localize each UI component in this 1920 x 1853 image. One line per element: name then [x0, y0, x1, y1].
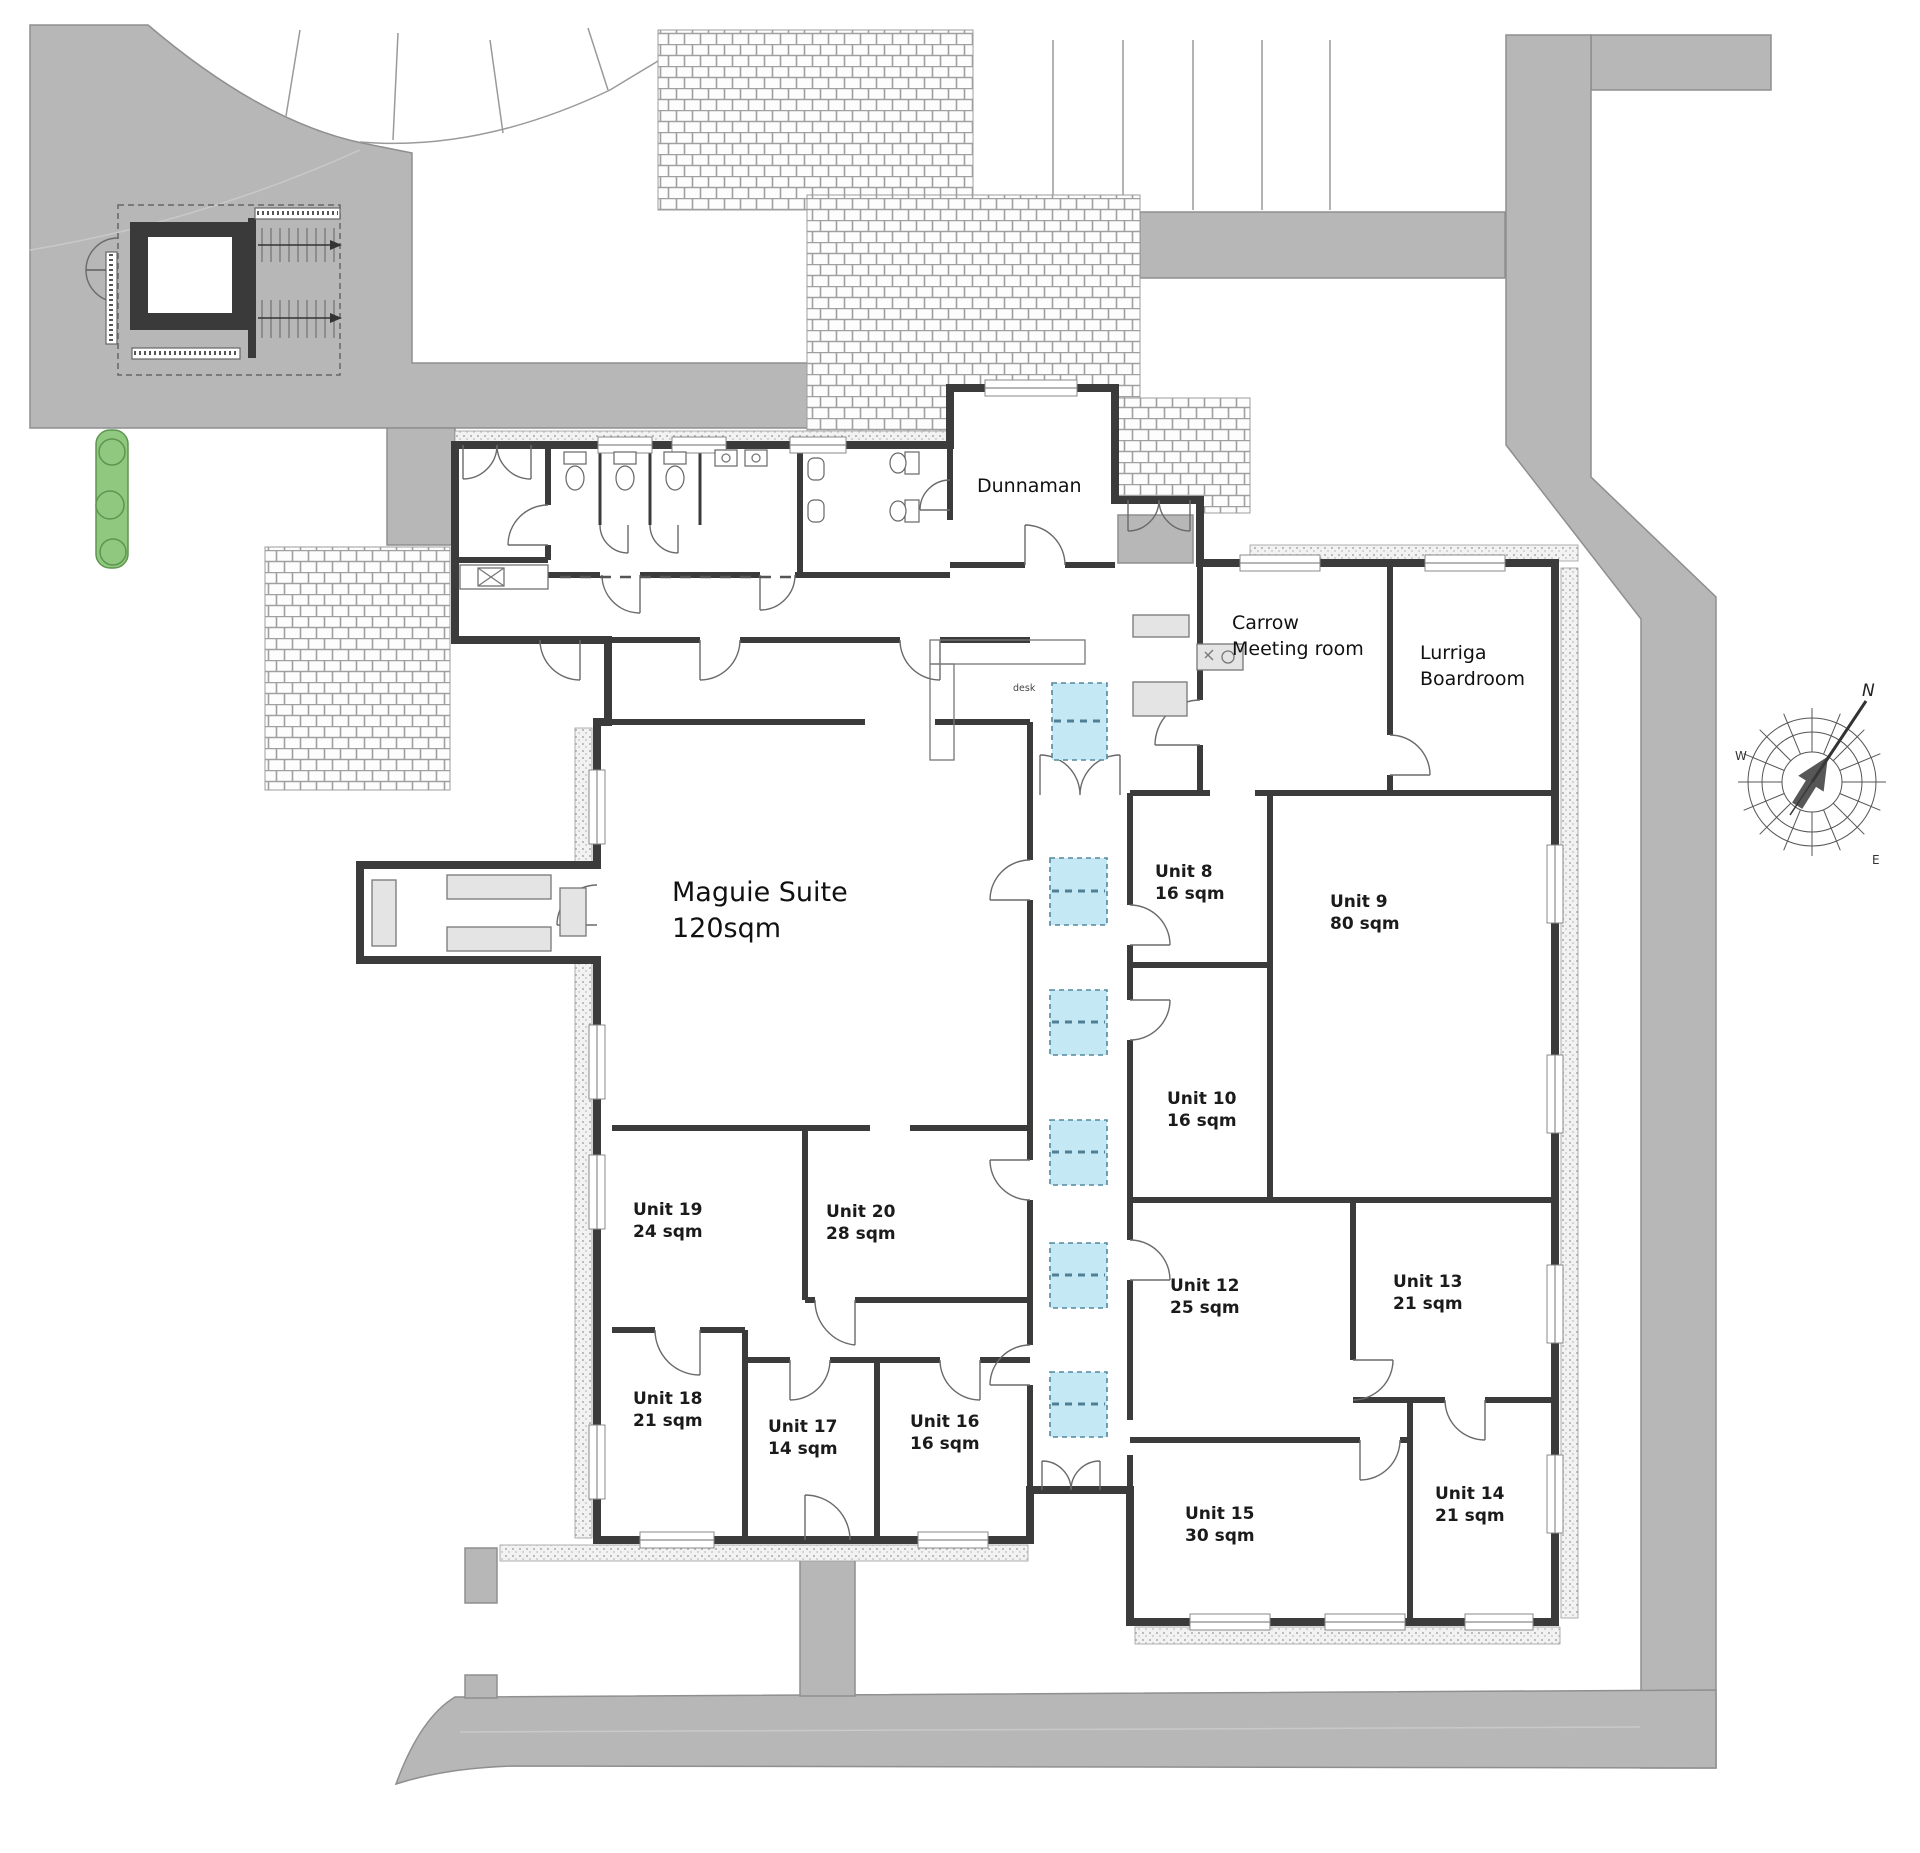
- label-maguie-2: 120sqm: [672, 913, 781, 944]
- stair-wall: [248, 218, 256, 358]
- label-unit-12-area: 25 sqm: [1170, 1298, 1240, 1318]
- label-unit-16-area: 16 sqm: [910, 1434, 980, 1454]
- label-unit-20-name: Unit 20: [826, 1202, 896, 1222]
- skylight-3: [1050, 990, 1107, 1055]
- label-carrow-2: Meeting room: [1232, 638, 1364, 660]
- skylight-4: [1050, 1120, 1107, 1185]
- label-unit-13-area: 21 sqm: [1393, 1294, 1463, 1314]
- label-unit-8-area: 16 sqm: [1155, 884, 1225, 904]
- label-unit-8-name: Unit 8: [1155, 862, 1213, 882]
- label-unit-18-name: Unit 18: [633, 1389, 702, 1409]
- label-maguie-1: Maguie Suite: [672, 877, 848, 908]
- entrance-porch: [1118, 515, 1193, 563]
- door-lobby-a: [540, 640, 580, 680]
- label-desk: desk: [1013, 683, 1036, 694]
- skylight-6: [1050, 1372, 1107, 1437]
- pavement-west-strip: [387, 428, 455, 545]
- label-unit-12-name: Unit 12: [1170, 1276, 1239, 1296]
- label-unit-19-name: Unit 19: [633, 1200, 702, 1220]
- label-unit-9-area: 80 sqm: [1330, 914, 1400, 934]
- walkway-bottom-center: [800, 1548, 855, 1696]
- label-dunnaman: Dunnaman: [977, 475, 1082, 497]
- floor-plan: Dunnaman Carrow Meeting room Lurriga Boa…: [0, 0, 1920, 1853]
- brick-paving-top: [658, 30, 973, 210]
- label-unit-15-name: Unit 15: [1185, 1504, 1254, 1524]
- label-unit-17-area: 14 sqm: [768, 1439, 838, 1459]
- label-lurriga-2: Boardroom: [1420, 668, 1525, 690]
- compass-west-label: W: [1735, 749, 1747, 763]
- parking-fan: [286, 28, 668, 143]
- label-unit-9-name: Unit 9: [1330, 892, 1388, 912]
- road-top-arm: [1591, 35, 1771, 90]
- label-carrow-1: Carrow: [1232, 612, 1299, 634]
- label-unit-18-area: 21 sqm: [633, 1411, 703, 1431]
- brick-paving-entry: [1110, 398, 1250, 513]
- lift-cab: [148, 237, 232, 313]
- label-unit-16-name: Unit 16: [910, 1412, 979, 1432]
- label-unit-15-area: 30 sqm: [1185, 1526, 1255, 1546]
- label-unit-13-name: Unit 13: [1393, 1272, 1462, 1292]
- label-unit-20-area: 28 sqm: [826, 1224, 896, 1244]
- label-unit-19-area: 24 sqm: [633, 1222, 703, 1242]
- skylight-5: [1050, 1243, 1107, 1308]
- compass-rose: N W E: [1735, 681, 1886, 867]
- parking-bays: [1053, 40, 1330, 210]
- kitchen-counter: [460, 565, 548, 589]
- label-lurriga-1: Lurriga: [1420, 642, 1487, 664]
- label-unit-14-name: Unit 14: [1435, 1484, 1505, 1504]
- compass-north-label: N: [1862, 681, 1875, 701]
- label-unit-14-area: 21 sqm: [1435, 1506, 1505, 1526]
- brick-paving-west: [265, 547, 450, 790]
- hedge: [96, 430, 128, 568]
- skylight-1: [1052, 683, 1107, 760]
- road-parking-band: [1140, 212, 1505, 278]
- compass-east-label: E: [1872, 853, 1880, 867]
- skylight-2: [1050, 858, 1107, 925]
- walkway-stub-left-b: [465, 1675, 497, 1698]
- road-bottom: [396, 1690, 1716, 1784]
- waiting-sofa-1: [1133, 615, 1189, 637]
- waiting-sofa-2: [1133, 682, 1187, 716]
- walkway-stub-left-a: [465, 1548, 497, 1603]
- label-unit-17-name: Unit 17: [768, 1417, 837, 1437]
- label-unit-10-area: 16 sqm: [1167, 1111, 1237, 1131]
- label-unit-10-name: Unit 10: [1167, 1089, 1237, 1109]
